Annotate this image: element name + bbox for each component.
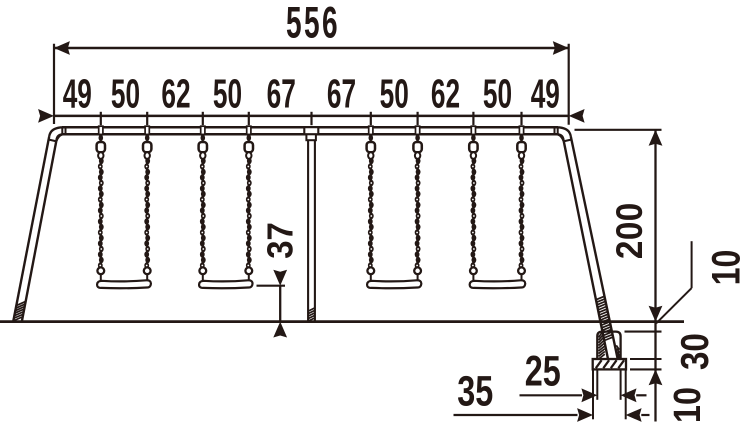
svg-text:30: 30	[672, 333, 716, 370]
svg-text:62: 62	[161, 72, 190, 117]
svg-text:50: 50	[483, 72, 512, 117]
svg-text:50: 50	[213, 72, 242, 117]
svg-text:556: 556	[286, 0, 340, 47]
svg-text:62: 62	[431, 72, 460, 117]
svg-text:49: 49	[531, 72, 560, 117]
svg-text:10: 10	[666, 387, 708, 422]
svg-text:37: 37	[261, 222, 301, 259]
svg-text:35: 35	[457, 368, 493, 415]
svg-text:200: 200	[610, 202, 651, 259]
svg-text:67: 67	[267, 72, 296, 117]
svg-text:67: 67	[327, 72, 356, 117]
svg-text:50: 50	[111, 72, 140, 117]
svg-text:49: 49	[63, 72, 92, 117]
svg-text:50: 50	[380, 72, 409, 117]
svg-text:25: 25	[525, 348, 561, 395]
svg-text:10: 10	[703, 250, 748, 286]
